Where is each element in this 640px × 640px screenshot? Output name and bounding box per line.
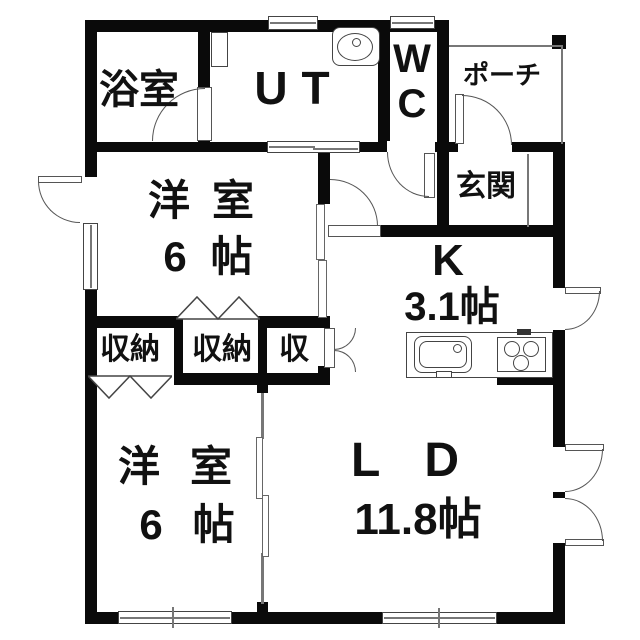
door-swing-arc-bedroom1 [330,179,378,226]
doorway-kitchen-back [553,288,565,330]
window-bedroom2-bottom-line [120,617,230,619]
genkan-step-line [527,154,529,227]
room-label-porch: ポーチ [463,62,541,88]
porch-edge-right [561,45,563,144]
window-utility-top-line [270,22,316,24]
kitchen-faucet-icon [453,344,462,353]
washer-pan [211,32,228,67]
wall-closet-bottom [174,373,330,385]
door-swing-arc-closet3-top [334,328,356,350]
room-label-wc: WC [390,37,434,127]
window-bedroom1-left-line [90,225,92,288]
kitchen-sink-drain [436,371,452,378]
doorway-living-lower [553,498,565,543]
door-swing-arc-closet3-bottom [334,350,356,372]
room-label-closet3: 収 [279,335,309,365]
wall-closet-top-left [85,316,178,328]
wall-closet3-stub-bottom [318,366,330,385]
door-leaf-bedroom1 [328,225,381,237]
wall-entrance-bottom [380,225,565,237]
doorway-living-upper [553,447,565,492]
sliding-door-utility-line-1 [269,146,315,148]
sliding-door-utility-line-2 [313,148,358,150]
partition-line-bedroom2-top [261,393,264,439]
window-wc-top-line [392,22,433,24]
room-size-bedroom1: 6帖 [139,236,276,278]
room-label-closet2: 収納 [192,335,252,365]
door-swing-arc-left-exterior [38,181,80,223]
room-size-living: 11.8帖 [354,498,481,542]
room-label-bath: 浴室 [99,70,179,110]
porch-edge-top [449,45,563,47]
wall-closet-divider-1 [174,316,183,385]
stove-burner-2 [523,341,539,357]
bifold-door-closet2-icon [176,294,260,321]
doorway-left-exterior [84,177,98,223]
room-label-closet1: 収納 [100,335,160,365]
wall-wc-entrance [437,20,449,237]
room-label-living: LD [307,437,503,485]
partition-panel-lower [318,260,327,318]
range-hood-icon [517,329,531,335]
bifold-door-closet1-icon [88,374,172,401]
door-swing-arc-living-lower [565,498,603,541]
wall-bedroom1-right [318,148,330,204]
vanity-sink-faucet-icon [352,38,361,47]
room-size-bedroom2: 6帖 [109,504,264,546]
partition-stub-top [257,385,268,393]
room-label-bedroom2: 洋室 [88,446,262,488]
room-label-utility: UT [240,65,343,111]
room-label-bedroom1: 洋室 [126,180,276,222]
door-swing-arc-living-upper [565,449,603,492]
door-swing-arc-kitchen-back [565,291,600,330]
door-swing-arc-entrance [462,95,512,145]
wall-closet-divider-2 [258,316,267,385]
room-label-kitchen: K [432,239,464,283]
room-size-kitchen: 3.1帖 [404,287,500,327]
room-label-entrance: 玄関 [456,172,516,202]
partition-panel-upper [316,204,325,260]
floor-plan: 浴室 UT WC ポーチ 玄関 洋室 6帖 K 3.1帖 収納 収納 収 洋室 … [0,0,640,640]
door-swing-arc-wc [387,152,429,197]
window-bedroom2-bottom-tick [172,607,174,628]
stove-burner-3 [513,355,529,371]
partition-line-bedroom2-bottom [261,553,264,604]
window-living-bottom-tick [438,608,440,628]
